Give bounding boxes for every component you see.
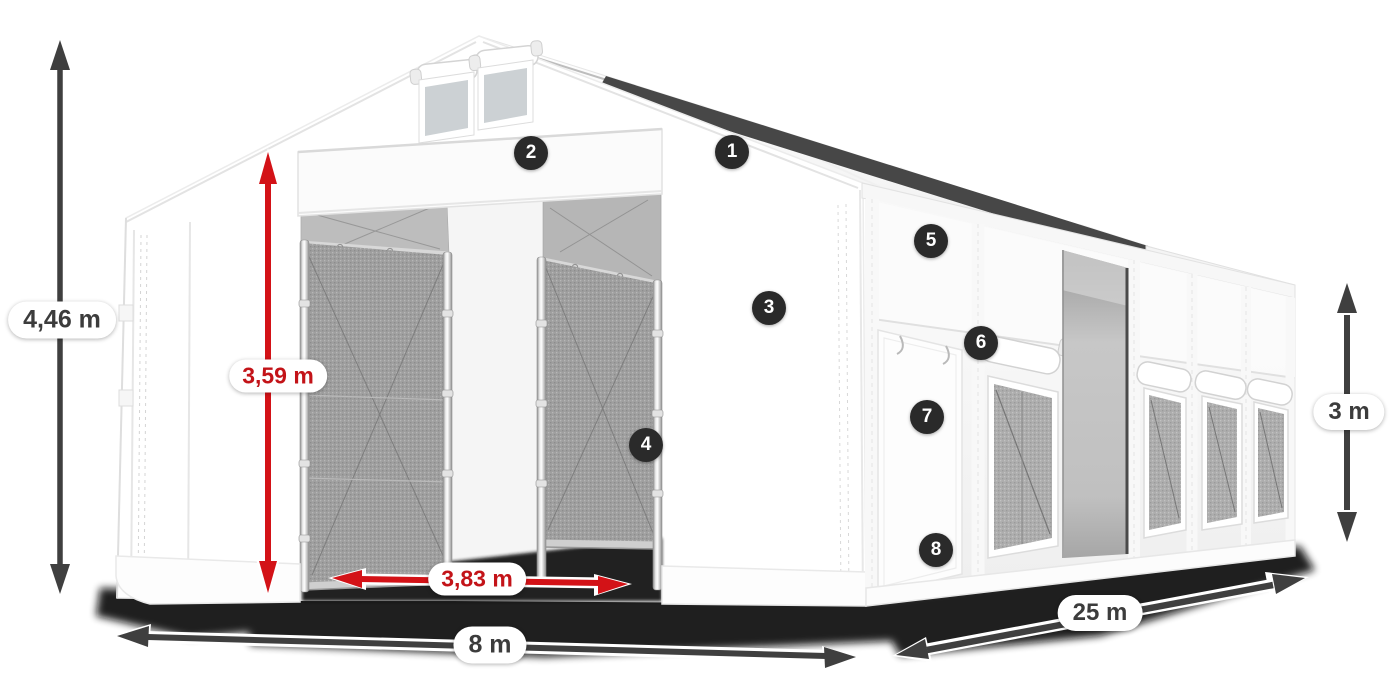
dimension-label-side-length: 25 m	[1058, 595, 1143, 631]
hotspot-number: 7	[922, 406, 933, 428]
hotspot-number: 1	[727, 141, 738, 163]
hotspot-number: 3	[764, 297, 775, 319]
dimension-value: 25 m	[1073, 599, 1128, 626]
side-doorway-opening	[1062, 250, 1128, 558]
dimension-label-total-height: 4,46 m	[8, 302, 116, 339]
dimension-value: 3,59 m	[242, 363, 314, 389]
hotspot-7[interactable]: 7	[910, 400, 944, 434]
dimension-value: 8 m	[468, 631, 511, 659]
dimension-value: 4,46 m	[23, 306, 101, 334]
dimension-label-entrance-width: 3,83 m	[428, 563, 526, 596]
hotspot-number: 5	[926, 230, 937, 252]
hotspot-8[interactable]: 8	[919, 533, 953, 567]
hotspot-2[interactable]: 2	[514, 136, 548, 170]
dimension-value: 3 m	[1328, 398, 1369, 425]
front-entrance	[299, 194, 663, 601]
hotspot-number: 6	[976, 332, 987, 354]
hotspot-4[interactable]: 4	[629, 428, 663, 462]
dimension-label-entrance-height: 3,59 m	[229, 360, 327, 393]
hotspot-6[interactable]: 6	[964, 326, 998, 360]
entrance-mesh-door-right	[542, 260, 660, 549]
hotspot-3[interactable]: 3	[752, 291, 786, 325]
dimension-value: 3,83 m	[441, 566, 513, 592]
hotspot-1[interactable]: 1	[715, 135, 749, 169]
hotspot-5[interactable]: 5	[914, 224, 948, 258]
hotspot-number: 4	[641, 434, 652, 456]
tent-illustration	[0, 0, 1400, 700]
dimension-label-wall-height: 3 m	[1313, 394, 1384, 430]
hotspot-number: 8	[931, 539, 942, 561]
hotspot-number: 2	[526, 142, 537, 164]
dimension-label-front-width: 8 m	[453, 627, 526, 664]
vent-window-right	[469, 40, 543, 130]
tent-dimension-diagram: 4,46 m 3,59 m 3,83 m 8 m 25 m 3 m 1 2 3 …	[0, 0, 1400, 700]
entrance-mesh-door-left	[303, 243, 448, 590]
